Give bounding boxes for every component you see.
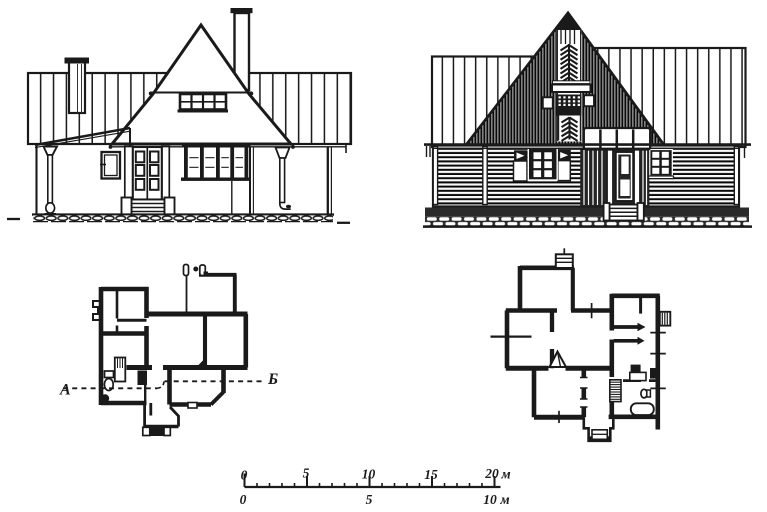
svg-text:А: А xyxy=(59,382,71,399)
svg-text:м: м xyxy=(499,492,509,507)
svg-text:10: 10 xyxy=(483,492,497,507)
svg-text:Б: Б xyxy=(267,371,278,388)
svg-text:0: 0 xyxy=(240,492,247,507)
svg-text:20: 20 xyxy=(484,466,499,481)
svg-text:5: 5 xyxy=(303,466,310,481)
svg-text:10: 10 xyxy=(362,467,376,482)
svg-text:15: 15 xyxy=(424,467,438,482)
svg-text:м: м xyxy=(500,467,510,482)
svg-text:5: 5 xyxy=(366,492,373,507)
svg-text:0: 0 xyxy=(241,468,248,483)
